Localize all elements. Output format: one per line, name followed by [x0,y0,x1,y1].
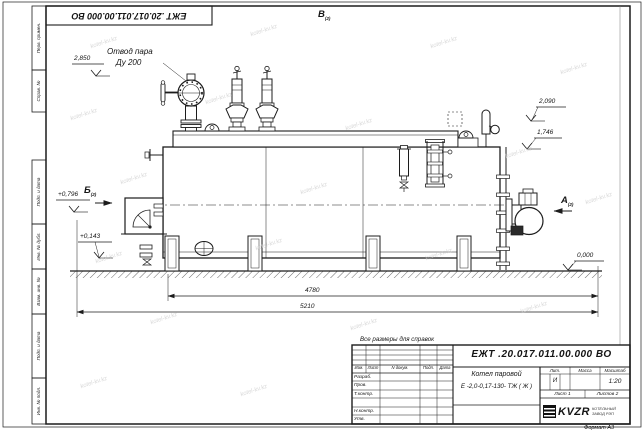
elevation-0143: +0,143 [80,234,100,241]
row-utv: Утв. [354,417,365,423]
title-block-designation: ЕЖТ .20.017.011.00.000 ВО [455,347,628,363]
reference-note: Все размеры для справок [360,336,430,343]
steam-outlet-dn: Ду 200 [116,59,141,67]
product-name-line1: Котел паровой [455,371,538,379]
elevation-0796: +0,796 [58,192,78,199]
elevation-2850: 2,850 [74,56,90,63]
col-podp: Подп. [420,366,437,371]
product-name-line2: Е -2,0-0,17-130- ТЖ ( Ж ) [453,383,540,390]
dimension-5210: 5210 [300,304,314,311]
col-izm: Изм. [352,366,366,371]
drawing-sheet: kotel-kv.kz kotel-kv.kz kotel-kv.kz kote… [0,0,644,430]
view-marker-a: А(2) [561,196,573,207]
row-nkontr: Н.контр. [354,409,374,415]
top-designation: ЕЖТ .20.017.011.00.000 ВО [46,6,212,25]
dimension-4780: 4780 [305,288,319,295]
margin-label-vzam-inv: Взам. инв. № [32,269,46,314]
row-tkontr: Т.контр. [354,392,373,398]
burner [506,189,543,235]
view-marker-b: Б(2) [84,186,96,197]
margin-label-inv-podl: Инв. № подл. [32,378,46,424]
view-marker-v: В(2) [318,10,330,21]
format-note: Формат А3 [584,425,614,430]
col-dokum: N докум. [380,366,420,371]
company-logo: KVZR КОТЕЛЬНЫЙ ЗАВОД РЭП [543,401,629,422]
margin-label-inv-dubl: Инв. № дубл. [32,224,46,269]
margin-label-podp-data-2: Подп. и дата [32,314,46,378]
sheets-total: Листов 2 [585,392,630,398]
company-name: KVZR [558,406,590,418]
margin-label-podp-data-1: Подп. и дата [32,160,46,224]
company-subtitle: КОТЕЛЬНЫЙ ЗАВОД РЭП [592,407,616,415]
safety-valves [226,66,278,131]
col-list: Лист [366,366,380,371]
margin-label-sprav: Справ. № [32,70,46,112]
row-prov: Пров. [354,383,367,389]
steam-outlet-valve [161,74,204,131]
furnace-front [121,149,167,265]
scale-value: 1:20 [600,378,630,385]
mass-label: Масса [570,368,600,373]
elevation-2090: 2,090 [539,99,555,106]
boiler-drawing [0,0,644,430]
margin-label-perv-primen: Перв. примен. [32,6,46,70]
lit-label: Лит. [540,368,570,373]
elevation-1746: 1,746 [537,130,553,137]
ground-line [70,271,602,278]
lit-value: И [550,378,560,385]
row-razrab: Разраб. [354,375,371,381]
manhole [195,242,213,256]
sheet-number: Лист 1 [540,392,585,398]
coil-logo-icon [543,405,556,418]
col-data: Дата [437,366,453,371]
elevation-0000: 0,000 [577,253,593,260]
steam-outlet-label: Отвод пара [107,48,153,56]
scale-label: Масштаб [600,368,630,373]
